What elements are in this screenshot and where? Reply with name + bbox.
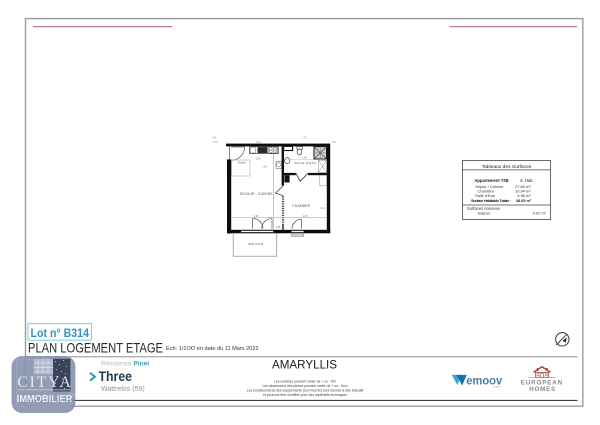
svg-text:1.60: 1.60 bbox=[262, 166, 267, 169]
svg-text:S. Hab: S. Hab bbox=[520, 178, 533, 183]
svg-text:1.05: 1.05 bbox=[303, 215, 308, 218]
svg-text:3.97: 3.97 bbox=[332, 141, 337, 144]
svg-text:1.48: 1.48 bbox=[302, 157, 307, 160]
svg-text:Les surfaces peuvent varier de: Les surfaces peuvent varier de + ou - 5% bbox=[274, 379, 336, 383]
svg-text:Lot n° B314: Lot n° B314 bbox=[31, 326, 90, 340]
svg-text:2.08: 2.08 bbox=[212, 137, 217, 140]
svg-text:PLAN LOGEMENT ETAGE: PLAN LOGEMENT ETAGE bbox=[28, 340, 163, 355]
svg-text:®: ® bbox=[73, 393, 76, 397]
svg-text:0.90: 0.90 bbox=[213, 141, 218, 144]
svg-text:Ech: 1/1OO en date du 11 Mar: Ech: 1/1OO en date du 11 Mars 2022 bbox=[166, 346, 259, 352]
svg-text:CITYA: CITYA bbox=[17, 374, 71, 391]
svg-text:1.75: 1.75 bbox=[302, 137, 307, 140]
svg-text:Résidence Pinel: Résidence Pinel bbox=[101, 361, 149, 368]
svg-text:IMMOBILIER: IMMOBILIER bbox=[17, 394, 73, 405]
svg-text:HOMES: HOMES bbox=[529, 386, 556, 393]
svg-text:Tableaux des Surfaces: Tableaux des Surfaces bbox=[482, 164, 532, 170]
svg-text:2.35: 2.35 bbox=[254, 215, 259, 218]
svg-text:BALCON: BALCON bbox=[249, 242, 264, 246]
svg-text:38.65 m²: 38.65 m² bbox=[516, 198, 532, 203]
svg-text:Three: Three bbox=[99, 369, 133, 384]
svg-text:2.08: 2.08 bbox=[256, 141, 261, 144]
svg-text:.immo: .immo bbox=[493, 384, 501, 388]
svg-text:Surface Habitable Totale :: Surface Habitable Totale : bbox=[471, 198, 511, 203]
svg-text:Les emplacements des équipemen: Les emplacements des équipements (non fo… bbox=[247, 389, 364, 393]
svg-text:et pourront être modifiés pour: et pourront être modifiés pour des impér… bbox=[263, 393, 347, 397]
svg-text:Wattrelos (59): Wattrelos (59) bbox=[101, 386, 145, 393]
svg-text:SALLE D'EAU: SALLE D'EAU bbox=[294, 161, 316, 165]
svg-text:CHAMBRE: CHAMBRE bbox=[292, 204, 310, 208]
svg-text:2.88: 2.88 bbox=[276, 226, 281, 229]
svg-text:2.08: 2.08 bbox=[256, 157, 261, 160]
svg-text:4.02 m²: 4.02 m² bbox=[532, 211, 546, 216]
svg-text:Appartement T2B: Appartement T2B bbox=[474, 178, 508, 183]
svg-text:AMARYLLIS: AMARYLLIS bbox=[272, 358, 337, 372]
svg-text:3.11: 3.11 bbox=[320, 207, 325, 210]
svg-text:SEJOUR - CUISINE: SEJOUR - CUISINE bbox=[240, 192, 273, 196]
svg-text:Les dimensions des pièces peuv: Les dimensions des pièces peuvent varier… bbox=[263, 384, 348, 388]
svg-text:Entrée: Entrée bbox=[238, 161, 246, 165]
svg-text:Balcon: Balcon bbox=[478, 211, 490, 216]
